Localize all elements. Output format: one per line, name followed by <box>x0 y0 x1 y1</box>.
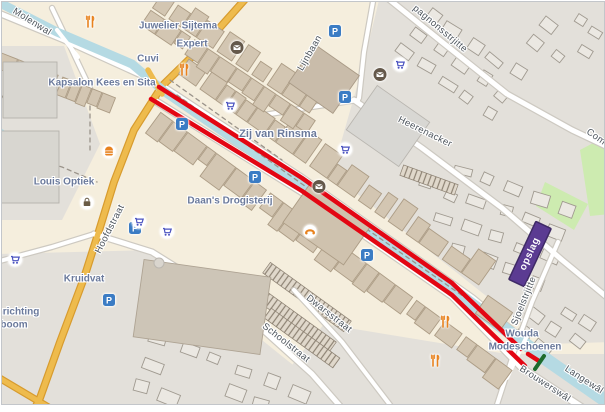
map-canvas[interactable]: MolenwalLijnbaanpagnonsstrjitteHeerenack… <box>1 1 605 405</box>
map-screenshot-frame: MolenwalLijnbaanpagnonsstrjitteHeerenack… <box>0 0 605 412</box>
map-tiles <box>2 2 604 404</box>
